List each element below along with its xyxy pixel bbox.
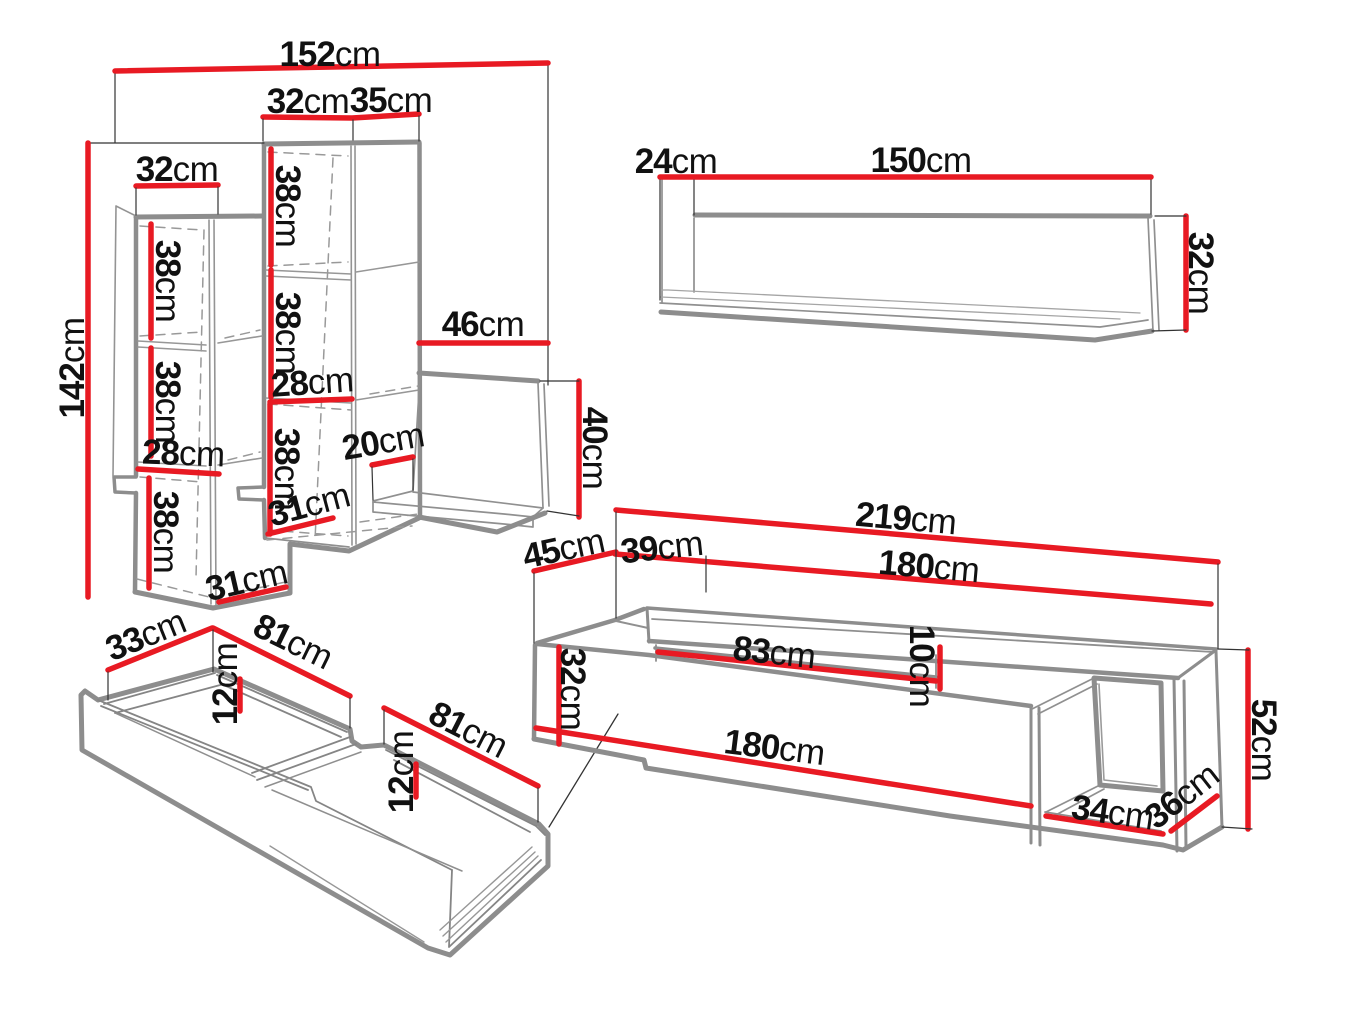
svg-text:32cm: 32cm <box>1181 232 1220 315</box>
svg-text:38cm: 38cm <box>268 292 307 375</box>
svg-text:35cm: 35cm <box>350 81 433 120</box>
svg-text:142cm: 142cm <box>53 317 92 418</box>
svg-text:38cm: 38cm <box>148 240 187 323</box>
svg-text:152cm: 152cm <box>279 35 380 74</box>
svg-text:28cm: 28cm <box>270 360 355 405</box>
svg-text:10cm: 10cm <box>902 625 941 708</box>
svg-text:32cm: 32cm <box>553 648 592 731</box>
svg-text:38cm: 38cm <box>146 491 185 574</box>
svg-text:52cm: 52cm <box>1244 699 1283 782</box>
svg-text:24cm: 24cm <box>635 142 718 181</box>
svg-text:81cm: 81cm <box>423 694 514 766</box>
svg-text:219cm: 219cm <box>854 495 958 543</box>
svg-text:46cm: 46cm <box>442 305 525 344</box>
svg-text:180cm: 180cm <box>877 543 981 591</box>
svg-text:12cm: 12cm <box>382 731 421 814</box>
svg-text:39cm: 39cm <box>619 524 705 571</box>
svg-text:45cm: 45cm <box>519 521 608 576</box>
svg-text:38cm: 38cm <box>148 361 187 444</box>
svg-text:33cm: 33cm <box>100 602 191 669</box>
svg-text:180cm: 180cm <box>722 722 827 773</box>
svg-text:12cm: 12cm <box>206 643 245 726</box>
svg-text:150cm: 150cm <box>870 141 971 180</box>
svg-text:32cm: 32cm <box>267 82 350 121</box>
svg-text:28cm: 28cm <box>141 433 225 475</box>
svg-text:38cm: 38cm <box>268 165 307 248</box>
svg-text:40cm: 40cm <box>575 407 614 490</box>
svg-text:32cm: 32cm <box>136 150 219 189</box>
